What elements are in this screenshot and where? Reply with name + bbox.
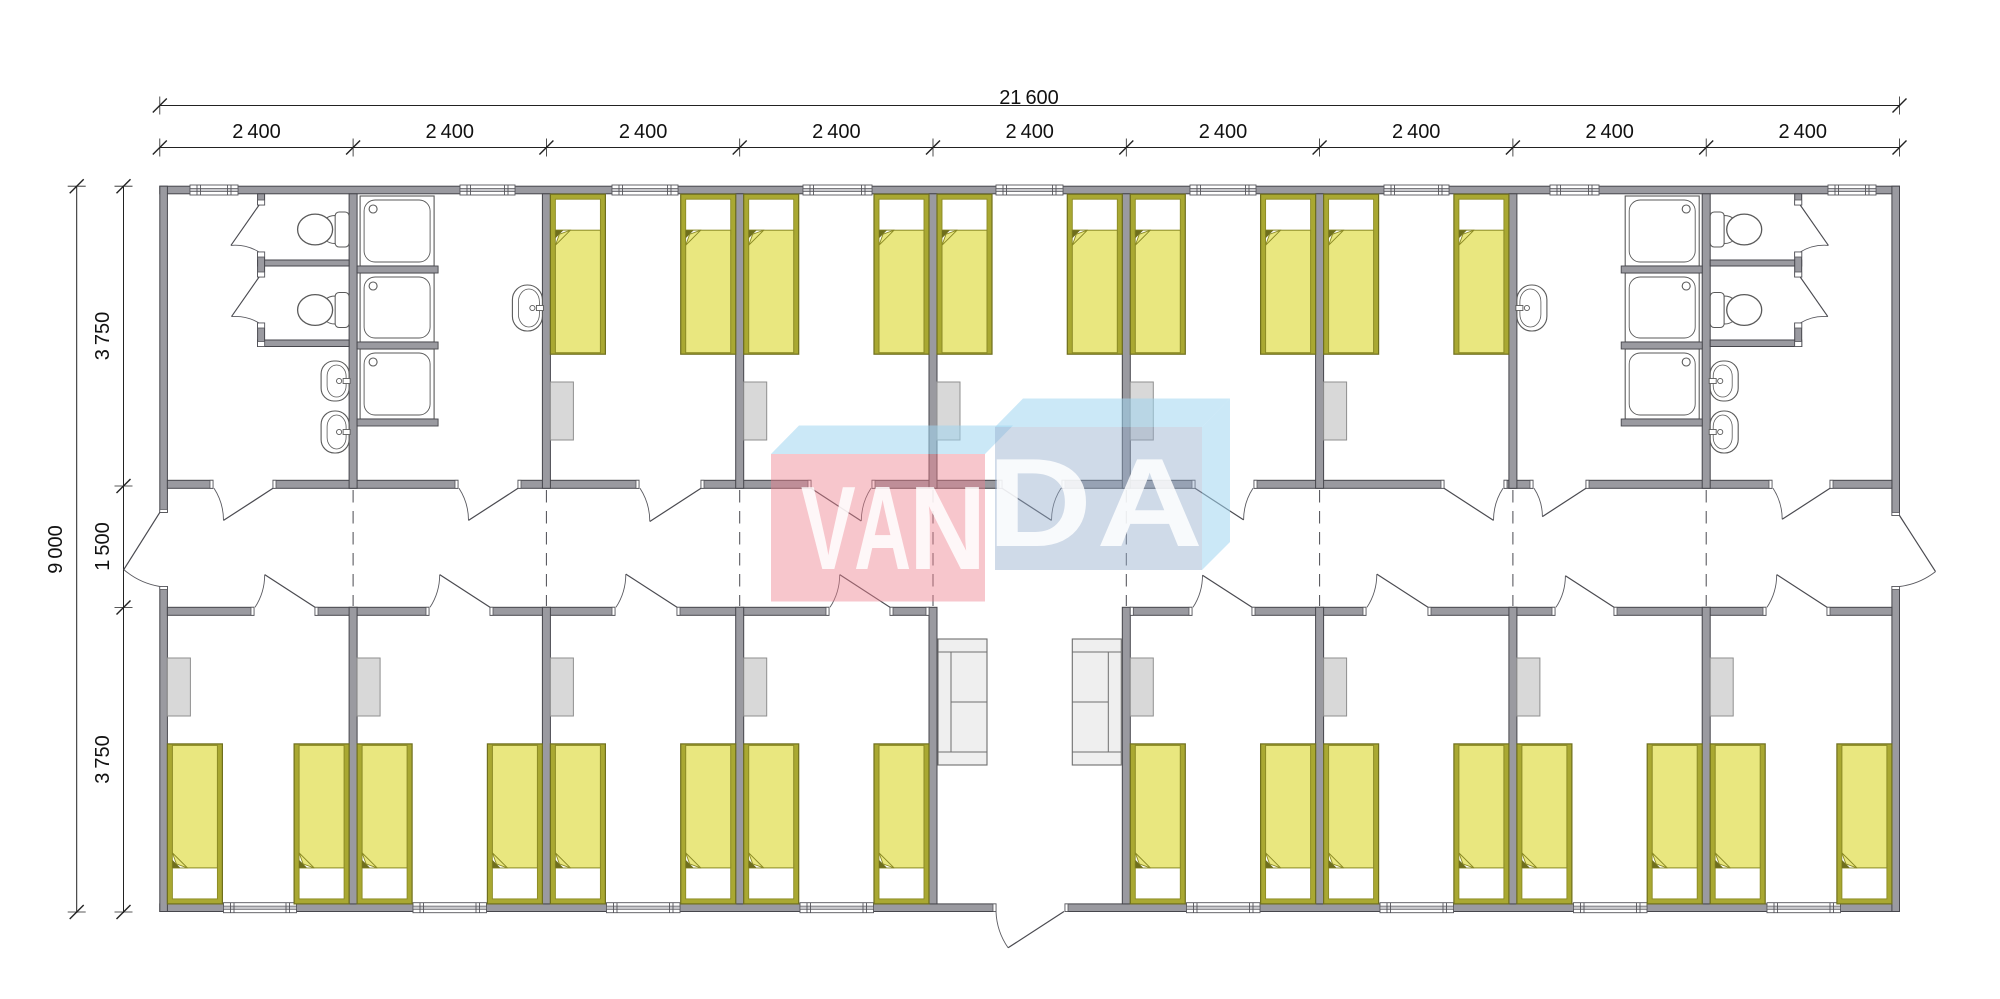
- svg-text:V: V: [801, 461, 856, 595]
- svg-text:2 400: 2 400: [1199, 121, 1248, 143]
- svg-text:N: N: [909, 462, 986, 595]
- svg-text:2 400: 2 400: [426, 121, 475, 143]
- svg-text:3 750: 3 750: [92, 312, 114, 361]
- svg-text:2 400: 2 400: [619, 121, 668, 143]
- svg-text:A: A: [1096, 433, 1203, 574]
- svg-text:2 400: 2 400: [1585, 121, 1634, 143]
- svg-text:9 000: 9 000: [45, 525, 67, 574]
- svg-text:3 750: 3 750: [92, 735, 114, 784]
- svg-text:D: D: [987, 432, 1092, 573]
- svg-text:1 500: 1 500: [92, 522, 114, 571]
- svg-text:21 600: 21 600: [999, 87, 1059, 109]
- svg-text:2 400: 2 400: [1005, 121, 1054, 143]
- svg-text:2 400: 2 400: [1392, 121, 1441, 143]
- svg-text:A: A: [854, 462, 911, 595]
- svg-text:2 400: 2 400: [812, 121, 861, 143]
- svg-text:2 400: 2 400: [232, 121, 281, 143]
- svg-text:2 400: 2 400: [1779, 121, 1828, 143]
